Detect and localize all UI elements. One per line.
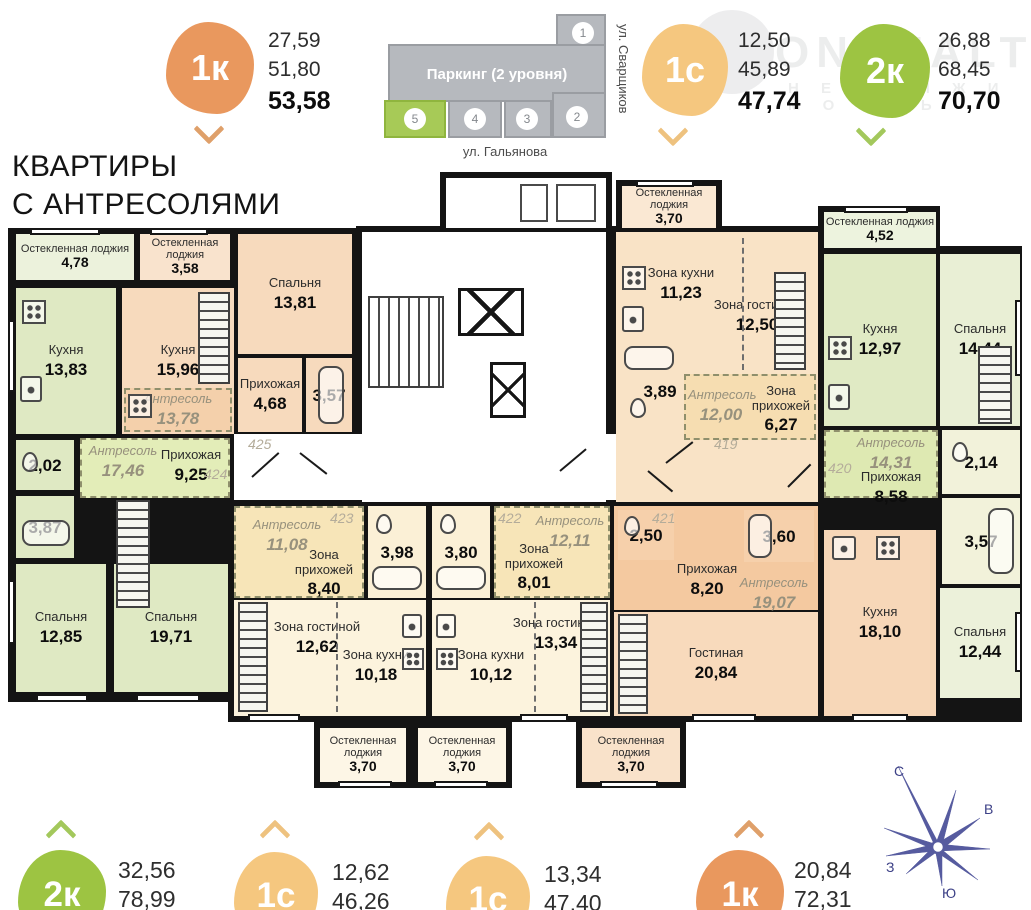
badge-1k-bottom[interactable]: 1к: [696, 850, 784, 910]
room-area: 3,98: [380, 543, 413, 562]
room-area: 15,96: [157, 360, 200, 379]
window: [150, 228, 208, 235]
toilet-icon: [624, 516, 640, 536]
badge-label: 1к: [191, 47, 229, 89]
compass-center: [932, 841, 944, 853]
window: [338, 781, 392, 788]
elevator-icon: [458, 288, 524, 336]
zone-antresol-419-label: Антресоль 12,00: [688, 388, 754, 424]
window: [520, 714, 568, 722]
badge-2k-values: 26,88 68,45 70,70: [938, 26, 1001, 116]
stove-icon: [828, 336, 852, 360]
room-area: 13,83: [45, 360, 88, 379]
sink-icon: [622, 306, 644, 332]
bathtub-icon: [748, 514, 772, 558]
street-label-galyanova: ул. Гальянова: [440, 144, 570, 159]
title-line-2: С АНТРЕСОЛЯМИ: [12, 186, 280, 224]
window: [844, 206, 908, 213]
room-area: 3,70: [655, 211, 682, 227]
value-min: 12,62: [332, 858, 390, 887]
window: [692, 714, 756, 722]
value-min: 27,59: [268, 26, 331, 55]
dashed-divider: [742, 238, 744, 370]
badge-label: 2к: [44, 875, 81, 910]
zone-area: 8,40: [284, 579, 364, 598]
zone-label: Антресоль: [534, 514, 606, 529]
zone-label: Зона гостиной: [262, 620, 372, 635]
room-label: Остекленная лоджия: [140, 237, 230, 262]
stairs-icon: [198, 292, 230, 384]
window: [852, 714, 908, 722]
room-area: 3,58: [171, 261, 198, 277]
zone-kitchen-422-label: Зона кухни 10,12: [448, 648, 534, 684]
apartment-number-423: 423: [330, 510, 353, 526]
chevron-down-icon[interactable]: [193, 113, 224, 144]
room-area: 3,70: [349, 759, 376, 775]
stove-icon: [22, 300, 46, 324]
window: [136, 694, 200, 702]
zone-hall-422-label: Зона прихожей 8,01: [496, 542, 572, 592]
badge-1s-bottom-2[interactable]: 1с: [446, 856, 530, 910]
room-area: 4,78: [61, 255, 88, 271]
badge-1s-top[interactable]: 1с: [642, 24, 728, 116]
room-label: Остекленная лоджия: [582, 735, 680, 760]
zone-label: Антресоль: [244, 518, 330, 533]
chevron-up-icon[interactable]: [473, 821, 504, 852]
badge-1k-values: 27,59 51,80 53,58: [268, 26, 331, 116]
chevron-up-icon[interactable]: [259, 819, 290, 850]
parking-label: Паркинг (2 уровня): [388, 66, 606, 83]
stove-icon: [402, 648, 424, 670]
compass-west-label: З: [886, 859, 894, 875]
room-bath-419-label: 3,89: [640, 380, 680, 401]
toilet-icon: [440, 514, 456, 534]
value-mid: 46,26: [332, 887, 390, 910]
badge-2k-bottom[interactable]: 2к: [18, 850, 106, 910]
sink-icon: [832, 536, 856, 560]
site-block-number-4: 4: [464, 108, 486, 130]
zone-label: Зона прихожей: [748, 384, 814, 413]
zone-antresol-420-label: Антресоль 14,31: [846, 436, 936, 472]
value-min: 20,84: [794, 856, 852, 885]
site-block-number-2: 2: [566, 106, 588, 128]
zone-area: 8,58: [846, 487, 936, 506]
value-mid: 47,40: [544, 889, 602, 910]
badge-1s-bottom-1[interactable]: 1с: [234, 852, 318, 910]
zone-label: Антресоль: [846, 436, 936, 451]
stove-icon: [436, 648, 458, 670]
shaft-box-icon: [556, 184, 596, 222]
bathtub-icon: [436, 566, 486, 590]
room-area: 12,85: [40, 627, 83, 646]
room-loggia-421: Остекленная лоджия 3,70: [582, 728, 680, 782]
room-area: 4,52: [866, 228, 893, 244]
chevron-down-icon[interactable]: [657, 115, 688, 146]
sink-icon: [828, 384, 850, 410]
value-min: 26,88: [938, 26, 1001, 55]
dashed-divider: [336, 602, 338, 712]
apartment-number-421: 421: [652, 510, 675, 526]
badge-label: 2к: [866, 50, 904, 92]
bathtub-icon: [22, 520, 70, 546]
room-label: Кухня: [863, 605, 898, 620]
toilet-icon: [376, 514, 392, 534]
zone-area: 10,12: [448, 665, 534, 684]
badge-2k-top[interactable]: 2к: [840, 24, 930, 118]
window: [36, 694, 88, 702]
stairs-icon: [774, 272, 806, 370]
room-label: Прихожая: [240, 377, 300, 392]
zone-hall-423-label: Зона прихожей 8,40: [284, 548, 364, 598]
room-label: Спальня: [35, 610, 87, 625]
room-label: Спальня: [145, 610, 197, 625]
bathtub-icon: [372, 566, 422, 590]
zone-label: Зона прихожей: [284, 548, 364, 577]
zone-area: 13,78: [157, 409, 200, 428]
window: [8, 320, 15, 392]
room-area: 3,70: [617, 759, 644, 775]
site-block-number-5: 5: [404, 108, 426, 130]
room-loggia-419: Остекленная лоджия 3,70: [622, 186, 716, 228]
room-area: 4,68: [253, 394, 286, 413]
title-line-1: КВАРТИРЫ: [12, 148, 280, 186]
room-area: 13,81: [274, 293, 317, 312]
room-label: Спальня: [954, 322, 1006, 337]
window: [636, 180, 694, 187]
room-hall-425: Прихожая 4,68: [238, 358, 302, 432]
window: [8, 580, 15, 644]
room-label: Гостиная: [689, 646, 744, 661]
value-min: 32,56: [118, 856, 176, 885]
zone-hall-419-label: Зона прихожей 6,27: [748, 384, 814, 434]
compass-east-label: В: [984, 801, 993, 817]
room-loggia-422: Остекленная лоджия 3,70: [418, 728, 506, 782]
room-label: Кухня: [49, 343, 84, 358]
value-mid: 78,99: [118, 885, 176, 910]
room-label: Кухня: [863, 322, 898, 337]
room-wc-420: 2,14: [942, 430, 1020, 494]
elevator-icon: [490, 362, 526, 418]
room-bedroom-425: Спальня 13,81: [238, 234, 352, 354]
room-area: 18,10: [859, 622, 902, 641]
room-label: Спальня: [954, 625, 1006, 640]
room-area: 12,97: [859, 339, 902, 358]
room-area: 3,89: [640, 382, 680, 401]
room-label: Спальня: [269, 276, 321, 291]
badge-label: 1с: [469, 880, 508, 910]
zone-label: Антресоль: [688, 388, 754, 403]
window: [434, 781, 488, 788]
compass-rose: С В З Ю: [878, 752, 1028, 902]
window: [1015, 300, 1022, 376]
dashed-divider: [534, 602, 536, 712]
room-label: Остекленная лоджия: [418, 735, 506, 760]
zone-area: 17,46: [84, 461, 162, 480]
room-label: Кухня: [161, 343, 196, 358]
zone-hall-420-label: Прихожая 8,58: [846, 470, 936, 506]
apartment-number-422: 422: [498, 510, 521, 526]
zone-label: Антресоль: [732, 576, 816, 591]
apartment-number-424: 424: [204, 466, 227, 482]
stairs-icon: [580, 602, 608, 712]
badge-label: 1с: [665, 49, 705, 91]
value-total: 53,58: [268, 87, 331, 116]
value-mid: 45,89: [738, 55, 801, 84]
stairs-icon: [978, 346, 1012, 424]
chevron-up-icon[interactable]: [45, 819, 76, 850]
zone-area: 6,27: [748, 415, 814, 434]
room-area: 3,70: [448, 759, 475, 775]
value-total: 47,74: [738, 87, 801, 116]
room-label: Остекленная лоджия: [320, 735, 406, 760]
chevron-up-icon[interactable]: [733, 819, 764, 850]
value-min: 12,50: [738, 26, 801, 55]
bathtub-icon: [318, 366, 344, 424]
chevron-down-icon[interactable]: [855, 115, 886, 146]
stove-icon: [876, 536, 900, 560]
zone-area: 12,00: [688, 405, 754, 424]
room-bedroom1-424: Спальня 12,85: [16, 564, 106, 692]
badge-label: 1к: [722, 875, 759, 910]
shaft-box-icon: [520, 184, 548, 222]
room-bedroom2-420: Спальня 12,44: [940, 588, 1020, 698]
toilet-icon: [630, 398, 646, 418]
room-area: 19,71: [150, 627, 193, 646]
value-mid: 68,45: [938, 55, 1001, 84]
stairs-icon: [618, 614, 648, 714]
compass-south-label: Ю: [942, 885, 956, 901]
window: [1015, 612, 1022, 672]
window: [600, 781, 658, 788]
badge-1s-bottom-2-values: 13,34 47,40: [544, 860, 602, 910]
badge-label: 1с: [257, 876, 296, 910]
site-block-number-1: 1: [572, 22, 594, 44]
site-block-number-3: 3: [516, 108, 538, 130]
badge-2k-bottom-values: 32,56 78,99: [118, 856, 176, 910]
badge-1s-values: 12,50 45,89 47,74: [738, 26, 801, 116]
apartment-number-420: 420: [828, 460, 851, 476]
apartment-number-419: 419: [714, 436, 737, 452]
zone-area: 19,07: [732, 593, 816, 612]
window: [30, 228, 100, 235]
street-label-svarschikov: ул. Сварщиков: [616, 24, 631, 114]
stove-icon: [622, 266, 646, 290]
window: [248, 714, 300, 722]
stairs-icon: [368, 296, 444, 388]
room-area: 12,44: [959, 642, 1002, 661]
floorplan-page: ONREALT Н Е Д В И Ж И М О С Т Ь 1к 27,59…: [0, 0, 1031, 910]
page-title: КВАРТИРЫ С АНТРЕСОЛЯМИ: [12, 148, 280, 224]
compass-north-label: С: [894, 763, 904, 779]
zone-label: Прихожая: [664, 562, 750, 577]
zone-label: Прихожая: [846, 470, 936, 485]
toilet-icon: [22, 452, 38, 472]
sink-icon: [402, 614, 422, 638]
bathtub-icon: [624, 346, 674, 370]
value-min: 13,34: [544, 860, 602, 889]
badge-1k-top[interactable]: 1к: [166, 22, 254, 114]
apartment-number-425: 425: [248, 436, 271, 452]
zone-label: Антресоль: [84, 444, 162, 459]
room-loggia-423: Остекленная лоджия 3,70: [320, 728, 406, 782]
sink-icon: [436, 614, 456, 638]
zone-label: Прихожая: [152, 448, 230, 463]
room-area: 3,80: [444, 543, 477, 562]
zone-label: Зона прихожей: [496, 542, 572, 571]
sink-icon: [20, 376, 42, 402]
badge-1s-bottom-1-values: 12,62 46,26: [332, 858, 390, 910]
zone-area: 8,01: [496, 573, 572, 592]
value-mid: 51,80: [268, 55, 331, 84]
value-total: 70,70: [938, 87, 1001, 116]
room-loggia-425: Остекленная лоджия 3,58: [140, 234, 230, 280]
stairs-icon: [238, 602, 268, 712]
room-label: Остекленная лоджия: [622, 187, 716, 212]
toilet-icon: [952, 442, 968, 462]
room-area: 2,14: [964, 453, 997, 472]
bathtub-icon: [988, 508, 1014, 574]
stairs-icon: [116, 500, 150, 608]
room-loggia-420: Остекленная лоджия 4,52: [824, 212, 936, 248]
room-area: 20,84: [695, 663, 738, 682]
stove-icon: [128, 394, 152, 418]
badge-1k-bottom-values: 20,84 72,31: [794, 856, 852, 910]
zone-label: Антресоль: [144, 392, 212, 407]
room-loggia-424: Остекленная лоджия 4,78: [16, 234, 134, 280]
zone-antresol-424-label: Антресоль 17,46: [84, 444, 162, 480]
value-mid: 72,31: [794, 885, 852, 910]
zone-antresol-421-label: Антресоль 19,07: [732, 576, 816, 612]
